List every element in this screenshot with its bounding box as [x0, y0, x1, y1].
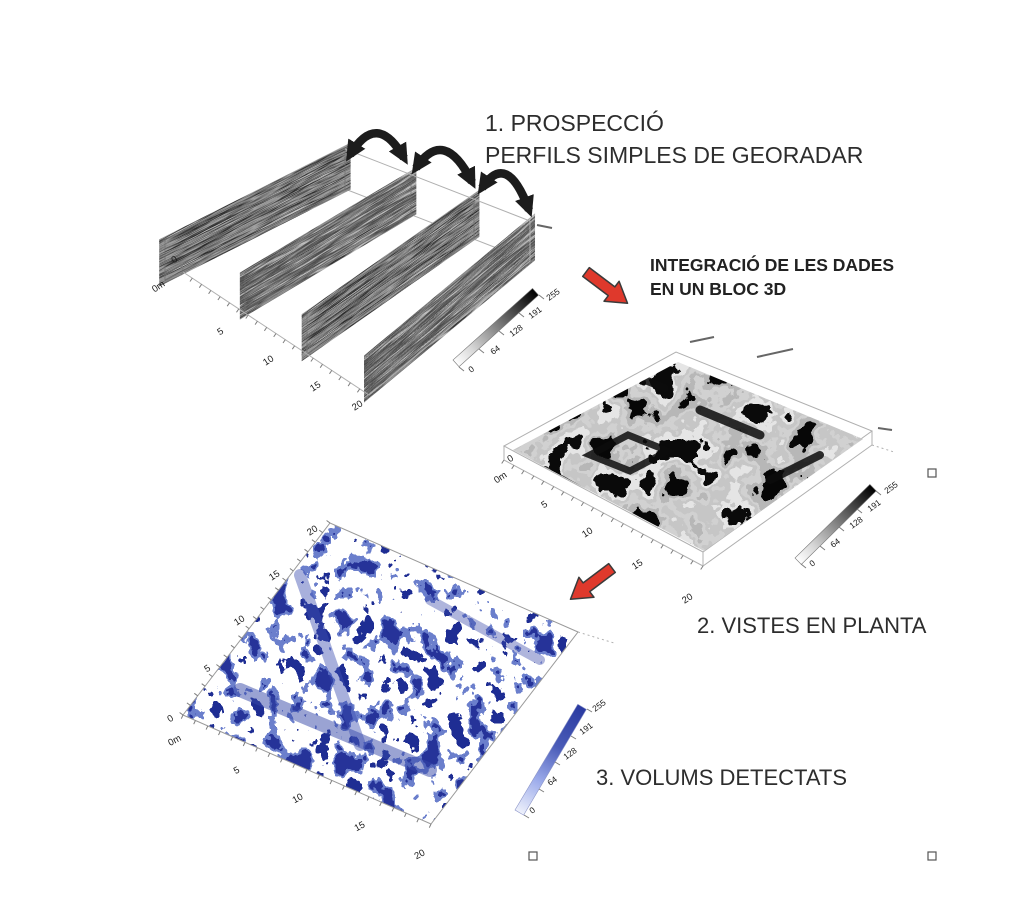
- axis-tick-label: 0m: [166, 733, 183, 749]
- axis-tick-label: 0: [505, 453, 515, 465]
- colorbar-tick-label: 64: [828, 536, 842, 550]
- axis-tick-label: 10: [261, 353, 276, 368]
- axis-tick-label: 0m: [150, 279, 167, 295]
- colorbar-tick-label: 191: [865, 497, 883, 514]
- fence-axis-microlabel: [537, 225, 552, 228]
- axis-tick-label: 5: [215, 326, 225, 338]
- colorbar-blue-volume: 255 191 128 64 0: [515, 697, 608, 818]
- figure-svg: 0 0m 5 10 15 20 255 191 128 64 0: [0, 0, 1028, 922]
- flow-arrow-down-right-icon: [578, 262, 635, 313]
- colorbar-tick-label: 191: [577, 720, 595, 737]
- colorbar-tick-label: 191: [526, 304, 544, 321]
- axis-tick-label: 15: [630, 557, 645, 572]
- axis-tick-label: 20: [350, 398, 365, 413]
- flow-arrow-down-left-icon: [563, 558, 620, 609]
- step3-title: 3. VOLUMS DETECTATS: [596, 765, 847, 790]
- axis-tick-label: 20: [680, 591, 695, 606]
- axis-tick-label: 15: [308, 379, 323, 394]
- axis-tick-label: 5: [232, 765, 242, 777]
- axis-tick-label: 10: [580, 525, 595, 540]
- axis-tick-label: 0: [165, 713, 175, 725]
- colorbar-grayscale-plan: 255 191 128 64 0: [795, 479, 900, 569]
- colorbar-tick-label: 255: [544, 286, 562, 303]
- gpr-workflow-figure: 0 0m 5 10 15 20 255 191 128 64 0: [0, 0, 1028, 922]
- step2-title: 2. VISTES EN PLANTA: [697, 613, 927, 638]
- colorbar-tick-label: 255: [882, 479, 900, 496]
- plan-hidden-axis: [872, 445, 894, 452]
- integration-note-line1: INTEGRACIÓ DE LES DADES: [650, 254, 894, 275]
- colorbar-tick-label: 0: [527, 805, 537, 816]
- volume-hidden-axis: [578, 632, 614, 643]
- fence-diagram-plot: 0 0m 5 10 15 20 255 191 128 64 0: [150, 133, 562, 413]
- plan-view-plot: 0 0m 5 10 15 20 255 191 128 64 0: [492, 337, 900, 606]
- axis-tick-label: 5: [539, 499, 549, 511]
- volume-plot: 0 5 10 15 20 0m 5 10 15 20 255 191 128 6…: [165, 520, 614, 862]
- colorbar-tick-label: 0: [466, 364, 476, 375]
- axis-tick-label: 15: [353, 819, 368, 834]
- axis-tick-label: 10: [291, 791, 306, 806]
- axis-tick-label: 20: [413, 847, 428, 862]
- step1-title-line1: 1. PROSPECCIÓ: [485, 110, 664, 136]
- axis-tick-label: 20: [305, 523, 320, 538]
- plan-top-microlabels: [690, 337, 793, 357]
- colorbar-tick-label: 64: [488, 343, 502, 357]
- axis-tick-label: 15: [267, 568, 282, 583]
- colorbar-tick-label: 128: [507, 322, 525, 339]
- plan-axis-microlabel: [878, 428, 892, 430]
- volume-isosurface: [180, 520, 580, 826]
- square-marker: [928, 469, 936, 477]
- square-marker: [928, 852, 936, 860]
- step1-title-line2: PERFILS SIMPLES DE GEORADAR: [485, 142, 863, 168]
- axis-tick-label: 5: [202, 663, 212, 675]
- colorbar-tick-label: 255: [590, 697, 608, 714]
- integration-note-line2: EN UN BLOC 3D: [650, 279, 786, 299]
- plan-view-map: [505, 355, 870, 560]
- axis-tick-label: 0m: [492, 470, 509, 486]
- axis-tick-label: 10: [232, 613, 247, 628]
- square-marker: [529, 852, 537, 860]
- colorbar-tick-label: 0: [807, 558, 817, 569]
- colorbar-tick-label: 64: [545, 774, 559, 788]
